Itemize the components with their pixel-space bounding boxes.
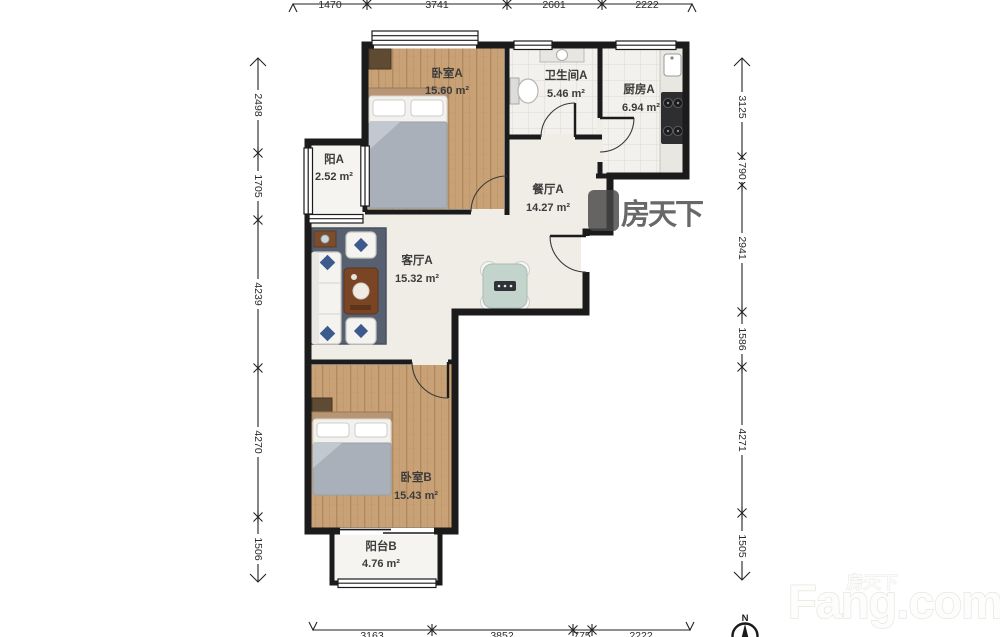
dim-chain-right: 3125 790 2941 1586 4271 1505	[734, 58, 750, 580]
dim-label: 3125	[736, 95, 748, 119]
dim-label: 3852	[490, 630, 514, 637]
nightstand-b	[312, 398, 332, 412]
bed-b	[312, 412, 392, 495]
room-label-bedroom-b: 卧室B	[400, 470, 431, 484]
room-area-bedroom-a: 15.60 m²	[425, 85, 469, 97]
nightstand-a	[369, 49, 391, 69]
armchair-top	[346, 232, 376, 258]
dim-chain-left: 2498 1705 4239 4270 1506	[250, 58, 266, 582]
dim-label: 790	[736, 162, 748, 180]
dim-label: 3163	[360, 630, 384, 637]
dim-label: 775	[573, 630, 591, 637]
room-label-kitchen-a: 厨房A	[623, 82, 654, 96]
brand-watermark-en: Fang.com	[788, 575, 1000, 628]
dim-label: 2222	[635, 0, 659, 11]
watermark-logo: 房天下	[588, 190, 703, 231]
bay-window	[372, 31, 478, 49]
balcony-b-floor	[332, 531, 440, 583]
balcony-b-sliding-door	[340, 528, 434, 535]
kitchen-window	[616, 41, 676, 50]
dim-label: 3741	[425, 0, 449, 11]
compass-needle	[739, 624, 751, 637]
balcony-a-living-window	[309, 215, 363, 224]
dim-label: 4270	[252, 430, 264, 454]
room-area-living-a: 15.32 m²	[395, 273, 439, 285]
room-area-balcony-a: 2.52 m²	[315, 171, 353, 183]
floorplan-canvas: 房天下 卧室A 15.60 m² 卫生间A 5.46 m² 厨房A 6.94 m…	[0, 0, 1000, 637]
dim-label: 1506	[252, 537, 264, 561]
room-area-bathroom-a: 5.46 m²	[547, 88, 585, 100]
dining-set	[481, 262, 530, 311]
room-label-dining-a: 餐厅A	[531, 182, 563, 196]
dim-chain-bottom: 3163 3852 775 2222	[309, 622, 694, 637]
room-label-bedroom-a: 卧室A	[431, 66, 462, 80]
brand-watermark: 房天下 Fang.com	[788, 572, 1000, 628]
dim-label: 4271	[736, 428, 748, 452]
room-label-living-a: 客厅A	[400, 253, 432, 267]
dim-label: 2498	[252, 93, 264, 117]
tv-cabinet	[314, 231, 336, 247]
room-label-balcony-a: 阳A	[324, 152, 344, 166]
room-area-dining-a: 14.27 m²	[526, 202, 570, 214]
dim-label: 2222	[629, 630, 653, 637]
dim-label: 1705	[252, 174, 264, 198]
room-label-bathroom-a: 卫生间A	[545, 68, 588, 82]
living-set	[311, 228, 386, 344]
room-area-bedroom-b: 15.43 m²	[394, 490, 438, 502]
dim-label: 1586	[736, 327, 748, 351]
dim-label: 1470	[318, 0, 342, 11]
dim-label: 2941	[736, 236, 748, 260]
dim-label: 4239	[252, 282, 264, 306]
sofa	[311, 252, 341, 344]
room-label-balcony-b: 阳台B	[365, 539, 396, 553]
bedroom-a-balcony-window	[361, 146, 370, 206]
balcony-a-side-window	[304, 148, 313, 214]
cooktop	[661, 92, 684, 144]
armchair-bottom	[346, 318, 376, 344]
balcony-b-window	[338, 579, 436, 588]
coffee-table	[344, 268, 378, 314]
room-area-balcony-b: 4.76 m²	[362, 558, 400, 570]
dim-label: 1505	[736, 534, 748, 558]
dim-label: 2601	[542, 0, 566, 11]
floorplan-page: 房天下 卧室A 15.60 m² 卫生间A 5.46 m² 厨房A 6.94 m…	[0, 0, 1000, 637]
compass: N	[733, 613, 758, 637]
bathroom-window	[514, 41, 552, 50]
dim-chain-top: 1470 3741 2601 2222	[289, 0, 696, 12]
bed-a	[368, 88, 448, 208]
watermark-logo-text: 房天下	[621, 198, 703, 231]
toilet	[510, 78, 538, 104]
room-area-kitchen-a: 6.94 m²	[622, 102, 660, 114]
